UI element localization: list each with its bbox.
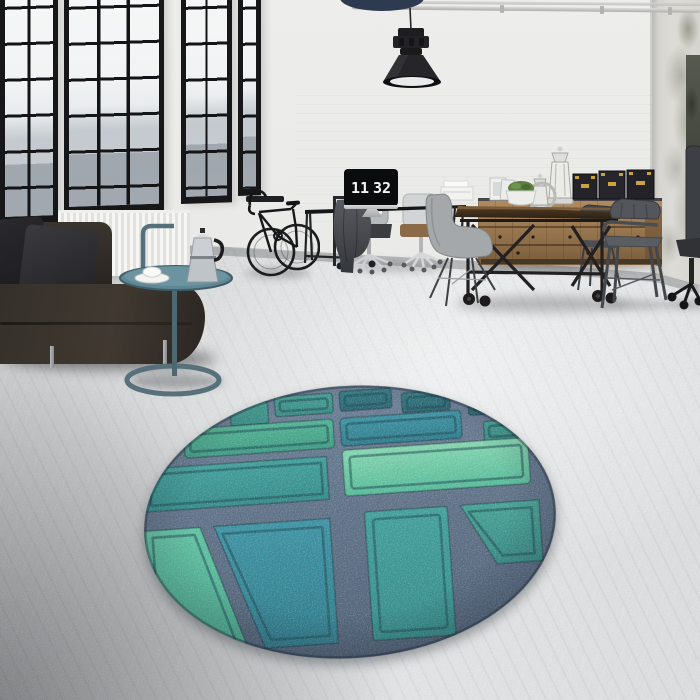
moka-pot [187,228,222,282]
office-chair-right [668,146,700,310]
round-rug [133,370,567,674]
metal-armchair [602,199,666,308]
pendant-lamp [330,0,465,100]
coffee-cup [143,267,161,277]
lamp-cord [410,8,411,30]
side-table-stem [172,286,177,376]
clock-hours: 11 [351,179,369,197]
ceiling-mount [340,0,424,11]
monitor-flip-clock: 1132 [344,169,398,206]
rug-edge-vignette [133,370,567,674]
monitor-chin [344,205,398,209]
table-casters [463,290,617,307]
lamp-inner-rim [390,77,434,86]
side-table-handle [143,226,174,270]
bike-frame [259,204,297,252]
table-group [395,140,700,330]
bike-saddle [286,201,300,206]
sofa-leg [50,346,54,368]
clock-minutes: 32 [373,179,391,197]
side-table-group [112,215,242,405]
loft-scene: 1132 [0,0,700,700]
